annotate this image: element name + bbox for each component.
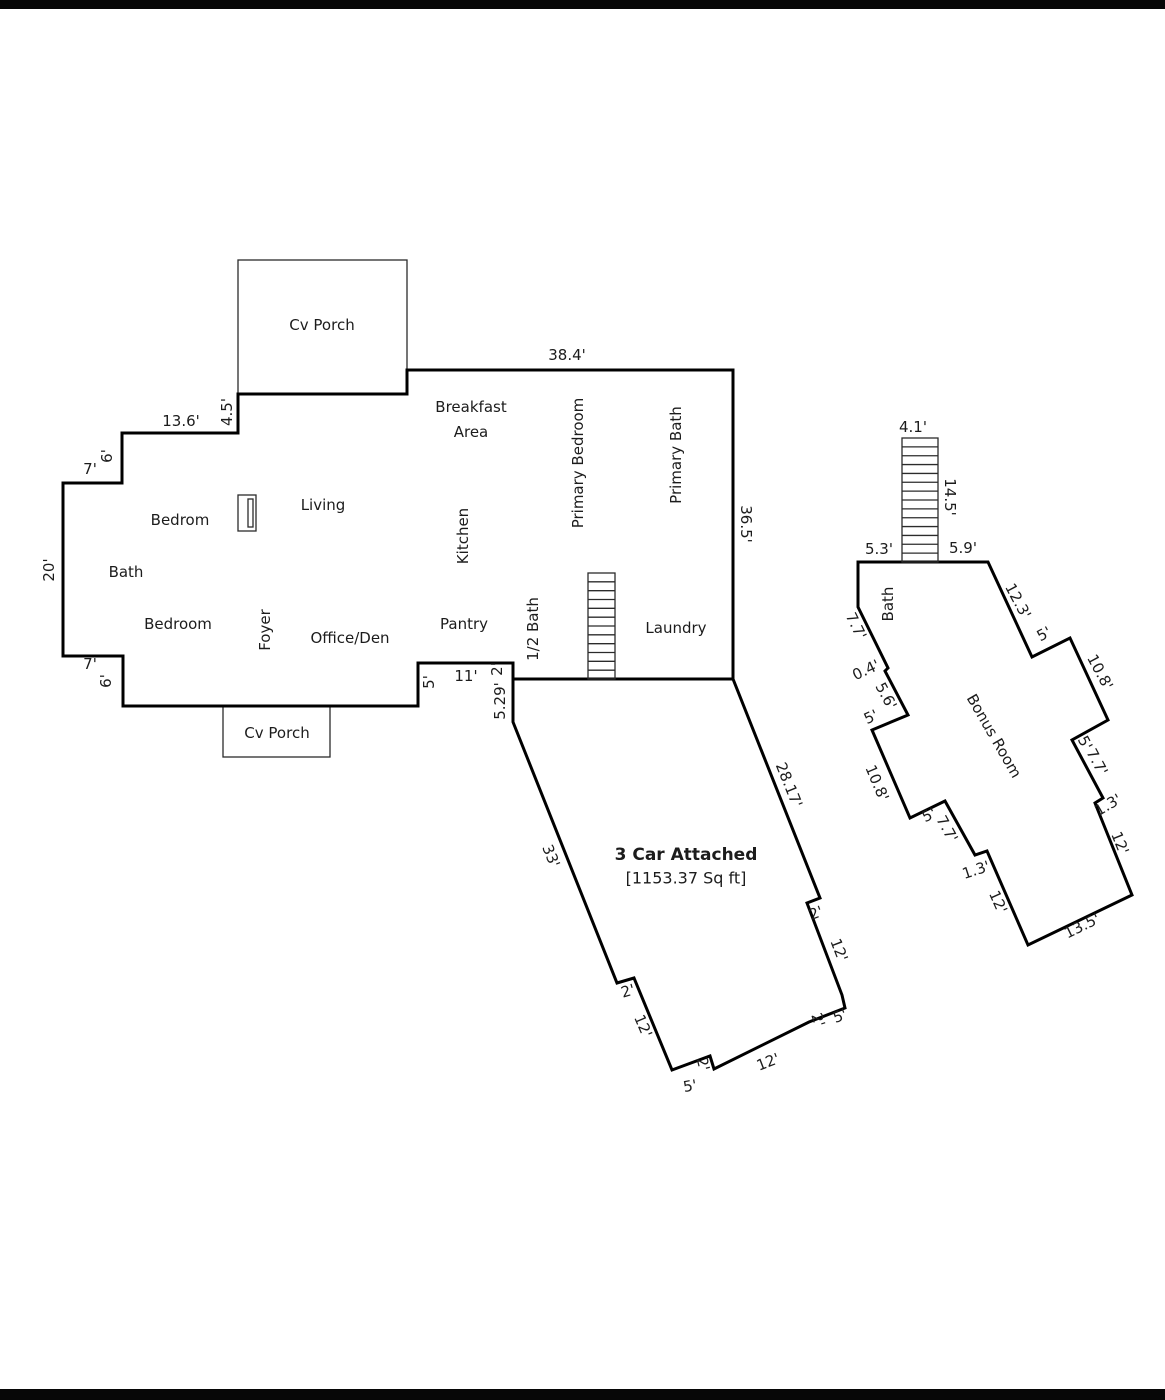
dimension-label: 12' <box>754 1049 782 1074</box>
dimension-label: 0.4' <box>850 656 883 684</box>
room-label-cv-porch-top: Cv Porch <box>289 316 354 334</box>
room-label-office-den: Office/Den <box>310 629 389 647</box>
room-label-primary-bedroom: Primary Bedroom <box>569 398 587 529</box>
dimension-label: 6' <box>98 449 116 463</box>
top-border <box>0 0 1165 9</box>
dimension-label: 7.7' <box>1082 745 1111 778</box>
dimension-label: 1.3' <box>1091 790 1124 820</box>
dimension-label: 5' <box>420 675 438 689</box>
bottom-border <box>0 1389 1165 1400</box>
floor-plan-svg: Cv PorchBreakfastAreaPrimary BedroomPrim… <box>0 0 1165 1400</box>
dimension-label: 5.29' <box>491 682 509 720</box>
dimension-label: 2' <box>807 1011 828 1030</box>
dimension-label: 20' <box>40 558 58 581</box>
dimension-label: 4.5' <box>218 398 236 426</box>
dimension-label: 33' <box>538 842 563 870</box>
room-label-kitchen: Kitchen <box>454 508 472 564</box>
dimension-label: 1.3' <box>960 857 992 883</box>
dimension-label: 13.5' <box>1061 910 1103 943</box>
dimension-label: 12' <box>630 1012 656 1040</box>
dimension-label: 12' <box>1107 829 1132 857</box>
dimension-label: 5' <box>682 1076 699 1096</box>
dimension-label: 28.17' <box>772 760 806 810</box>
dimension-label: 14.5' <box>941 478 959 516</box>
dimension-label: 12' <box>985 888 1011 917</box>
dimension-label: 5' <box>861 706 881 728</box>
room-label-breakfast-line2: Area <box>454 423 489 441</box>
dimension-label: 7' <box>83 655 97 673</box>
room-label-pantry: Pantry <box>440 615 488 633</box>
dimension-label: 10.8' <box>1083 651 1117 693</box>
room-label-cv-porch-bottom: Cv Porch <box>244 724 309 742</box>
room-label-laundry: Laundry <box>645 619 706 637</box>
dimension-label: 7' <box>83 460 97 478</box>
room-label-breakfast-line1: Breakfast <box>435 398 507 416</box>
dimension-label: 5.3' <box>865 540 893 558</box>
room-label-living: Living <box>301 496 346 514</box>
dimension-label: 2' <box>619 980 637 1001</box>
dimension-label: 2' <box>488 662 506 676</box>
dimension-label: 5.9' <box>949 539 977 557</box>
room-label-half-bath: 1/2 Bath <box>524 597 542 661</box>
room-label-bath-main: Bath <box>109 563 144 581</box>
dimension-label: 38.4' <box>548 346 586 364</box>
dimension-label: 5' <box>1034 623 1055 645</box>
dimension-label: 7.7' <box>842 609 870 642</box>
room-label-bedroom: Bedroom <box>144 615 212 633</box>
dimension-label: 36.5' <box>737 505 755 543</box>
dimension-label: 5' <box>830 1005 849 1027</box>
room-label-garage-sqft: [1153.37 Sq ft] <box>626 869 747 888</box>
dimension-label: 5.6' <box>871 679 900 712</box>
dimension-label: 2' <box>693 1055 714 1073</box>
dimension-label: 4.1' <box>899 418 927 436</box>
room-label-primary-bath: Primary Bath <box>667 406 685 504</box>
room-label-bonus-room: Bonus Room <box>963 691 1025 781</box>
room-label-bedrom: Bedrom <box>151 511 210 529</box>
dimension-label: 2' <box>806 902 825 924</box>
fireplace-icon-inner <box>248 499 253 527</box>
dimension-label: 11' <box>454 667 477 685</box>
dimension-label: 6' <box>97 674 115 688</box>
room-label-bath-bonus: Bath <box>879 587 897 622</box>
dimension-label: 13.6' <box>162 412 200 430</box>
room-label-garage-title: 3 Car Attached <box>615 845 758 865</box>
floor-plan-page: Cv PorchBreakfastAreaPrimary BedroomPrim… <box>0 0 1165 1400</box>
room-label-foyer: Foyer <box>256 608 274 650</box>
